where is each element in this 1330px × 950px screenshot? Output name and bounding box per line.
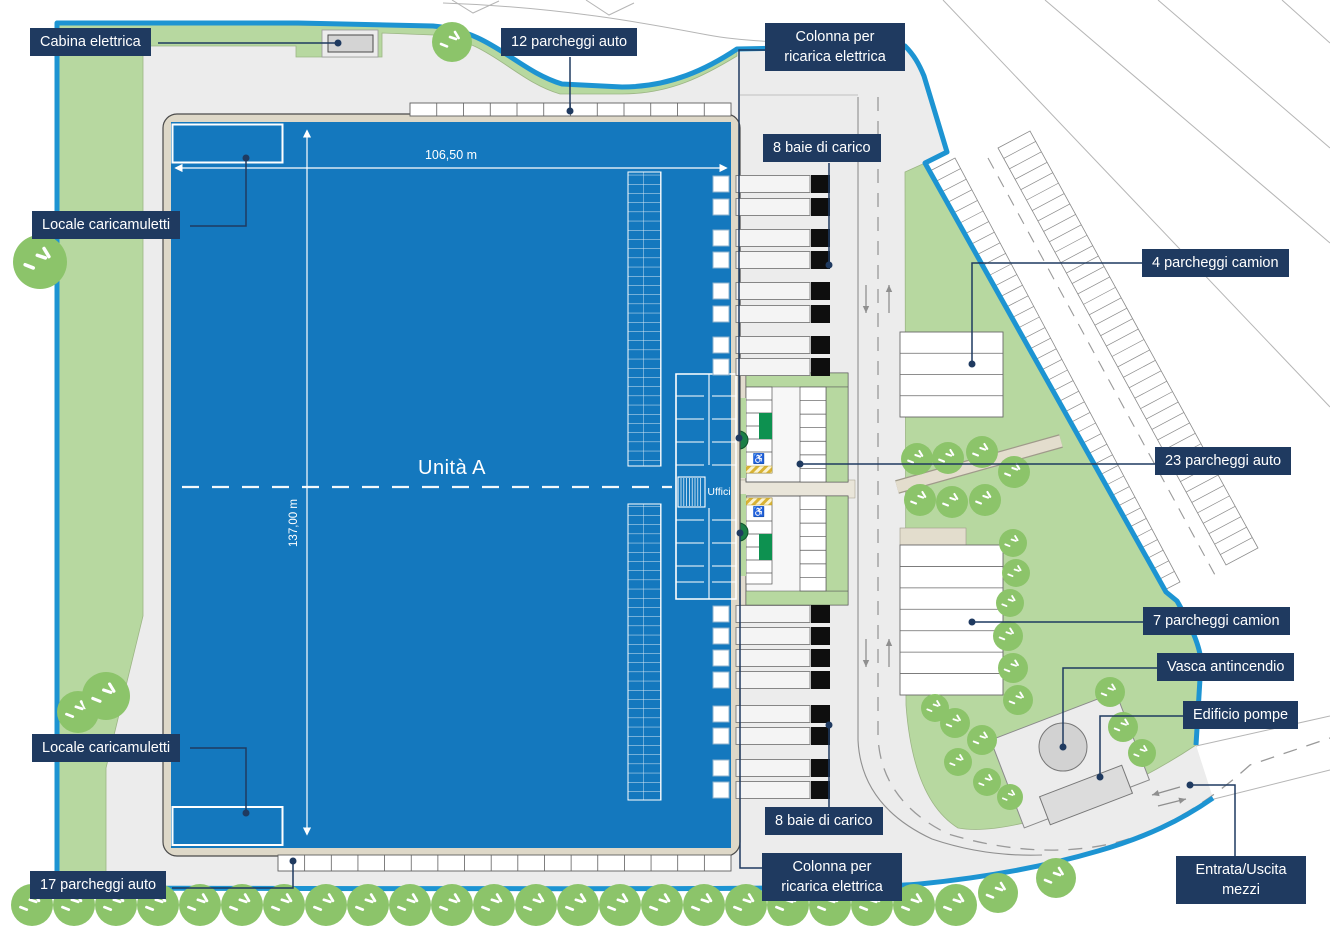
leader-dot	[797, 461, 804, 468]
trailer	[736, 359, 810, 376]
tree-icon	[973, 768, 1001, 796]
site-plan-stage: ♿♿ Unità A 106,50 m 137,00 m Uffici Cabi…	[0, 0, 1330, 950]
dock-door	[713, 672, 729, 688]
label-locale-caricamuletti-top: Locale caricamuletti	[32, 211, 180, 239]
tree-icon	[683, 884, 725, 926]
tree-icon	[1003, 685, 1033, 715]
truck-cab	[811, 705, 830, 723]
label-23-parcheggi-auto: 23 parcheggi auto	[1155, 447, 1291, 475]
label-entrata-uscita-mezzi: Entrata/Uscita mezzi	[1176, 856, 1306, 904]
trailer	[736, 252, 810, 269]
truck-cab	[811, 282, 830, 300]
truck-cab	[811, 627, 830, 645]
label-colonna-ricarica-bottom: Colonna per ricarica elettrica	[762, 853, 902, 901]
tree-icon	[993, 621, 1023, 651]
tree-icon	[966, 436, 998, 468]
tree-icon	[997, 784, 1023, 810]
leader-dot	[243, 155, 250, 162]
trailer	[736, 230, 810, 247]
site-plan-page: { "plan": { "building": { "name": "Unità…	[0, 0, 1330, 950]
truck-cab	[811, 781, 830, 799]
wheelchair-icon: ♿	[753, 505, 765, 518]
leader-dot	[567, 108, 574, 115]
truck-cab	[811, 605, 830, 623]
trailer	[736, 176, 810, 193]
tree-icon	[932, 442, 964, 474]
truck-cab	[811, 336, 830, 354]
leader-dot	[1060, 744, 1067, 751]
tree-icon	[515, 884, 557, 926]
trailer	[736, 650, 810, 667]
label-vasca-antincendio: Vasca antincendio	[1157, 653, 1294, 681]
label-colonna-ricarica-top: Colonna per ricarica elettrica	[765, 23, 905, 71]
trailer	[736, 283, 810, 300]
dock-door	[713, 283, 729, 299]
truck-cab	[811, 727, 830, 745]
tree-icon	[431, 884, 473, 926]
label-4-parcheggi-camion: 4 parcheggi camion	[1142, 249, 1289, 277]
racking-bottom	[628, 504, 661, 800]
charging-stall	[759, 534, 772, 560]
dock-door	[713, 706, 729, 722]
truck-cab	[811, 649, 830, 667]
tree-icon	[1128, 739, 1156, 767]
dock-door	[713, 782, 729, 798]
label-7-parcheggi-camion: 7 parcheggi camion	[1143, 607, 1290, 635]
tree-icon	[998, 456, 1030, 488]
label-12-parcheggi-auto: 12 parcheggi auto	[501, 28, 637, 56]
trailer	[736, 306, 810, 323]
tree-icon	[82, 672, 130, 720]
truck-cab	[811, 358, 830, 376]
dimension-length-value: 137,00 m	[288, 499, 300, 547]
trailer	[736, 628, 810, 645]
building-unita-a: Unità A 106,50 m 137,00 m Uffici	[163, 114, 740, 856]
leader-dot	[1187, 782, 1194, 789]
trailer	[736, 337, 810, 354]
trailer	[736, 728, 810, 745]
tree-icon	[641, 884, 683, 926]
dock-door	[713, 628, 729, 644]
dock-door	[713, 337, 729, 353]
tree-icon	[998, 653, 1028, 683]
wheelchair-icon: ♿	[753, 452, 765, 465]
tree-icon	[1095, 677, 1125, 707]
tree-icon	[599, 884, 641, 926]
office-label: Uffici	[707, 486, 730, 498]
tree-icon	[940, 708, 970, 738]
label-locale-caricamuletti-bottom: Locale caricamuletti	[32, 734, 180, 762]
tree-icon	[936, 486, 968, 518]
leader-dot	[969, 619, 976, 626]
leader-dot	[736, 435, 743, 442]
dock-door	[713, 650, 729, 666]
leader-dot	[290, 858, 297, 865]
truck-cab	[811, 175, 830, 193]
truck-cab	[811, 759, 830, 777]
tree-icon	[996, 589, 1024, 617]
tree-icon	[221, 884, 263, 926]
tree-icon	[969, 484, 1001, 516]
trailer	[736, 672, 810, 689]
dock-door	[713, 199, 729, 215]
tree-icon	[13, 235, 67, 289]
tree-icon	[904, 484, 936, 516]
dimension-width-value: 106,50 m	[425, 148, 477, 162]
tree-icon	[263, 884, 305, 926]
leader-dot	[243, 810, 250, 817]
label-cabina-elettrica: Cabina elettrica	[30, 28, 151, 56]
trailer	[736, 606, 810, 623]
leader-dot	[1097, 774, 1104, 781]
trailer	[736, 782, 810, 799]
dock-door	[713, 306, 729, 322]
dock-door	[713, 760, 729, 776]
leader-dot	[826, 262, 833, 269]
racking-top	[628, 172, 661, 466]
tree-icon	[967, 725, 997, 755]
label-17-parcheggi-auto: 17 parcheggi auto	[30, 871, 166, 899]
tree-icon	[935, 884, 977, 926]
tree-icon	[347, 884, 389, 926]
tree-icon	[389, 884, 431, 926]
tree-icon	[305, 884, 347, 926]
dock-door	[713, 728, 729, 744]
tree-icon	[999, 529, 1027, 557]
charging-stall	[759, 413, 772, 439]
tree-icon	[557, 884, 599, 926]
truck-cab	[811, 671, 830, 689]
tree-icon	[978, 873, 1018, 913]
trailer	[736, 760, 810, 777]
label-edificio-pompe: Edificio pompe	[1183, 701, 1298, 729]
site-plan-drawing: ♿♿ Unità A 106,50 m 137,00 m Uffici	[0, 0, 1330, 950]
tree-icon	[179, 884, 221, 926]
truck-cab	[811, 305, 830, 323]
dock-door	[713, 176, 729, 192]
parking-row-bottom-17	[278, 855, 731, 871]
tree-icon	[473, 884, 515, 926]
label-8-baie-carico-bottom: 8 baie di carico	[765, 807, 883, 835]
dock-door	[713, 606, 729, 622]
truck-cab	[811, 229, 830, 247]
tree-icon	[1002, 559, 1030, 587]
tree-icon	[1036, 858, 1076, 898]
dock-door	[713, 359, 729, 375]
leader-dot	[335, 40, 342, 47]
dock-door	[713, 252, 729, 268]
trailer	[736, 199, 810, 216]
tree-icon	[725, 884, 767, 926]
leader-dot	[826, 722, 833, 729]
truck-parking-4	[900, 332, 1003, 417]
leader-dot	[969, 361, 976, 368]
leader-dot	[737, 530, 744, 537]
truck-parking-7	[900, 545, 1003, 695]
truck-cab	[811, 198, 830, 216]
trailer	[736, 706, 810, 723]
tree-icon	[944, 748, 972, 776]
building-name: Unità A	[418, 457, 486, 479]
dock-door	[713, 230, 729, 246]
tree-icon	[901, 443, 933, 475]
tree-icon	[432, 22, 472, 62]
central-parking-lots: ♿♿	[730, 373, 855, 605]
label-8-baie-carico-top: 8 baie di carico	[763, 134, 881, 162]
parking-lot: ♿	[746, 496, 848, 605]
